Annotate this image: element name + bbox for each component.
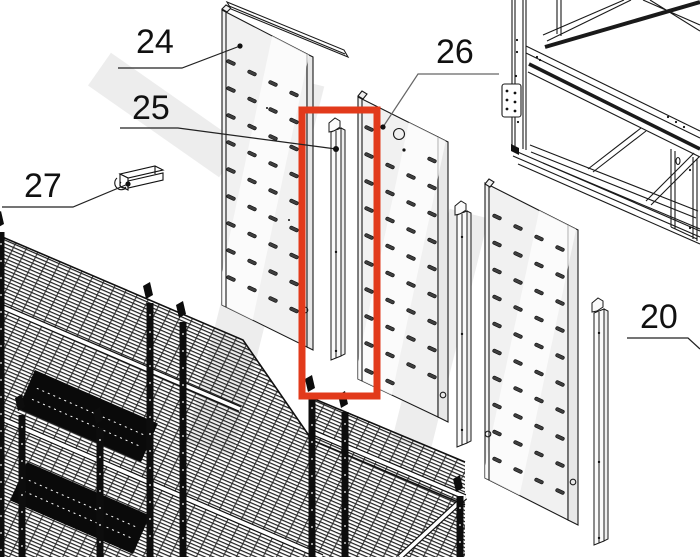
leader-27 xyxy=(2,184,128,207)
callout-27: 27 xyxy=(24,167,62,205)
leader-25-dot xyxy=(333,146,339,152)
post-hook-bracket xyxy=(0,211,4,228)
post-25 xyxy=(329,118,345,360)
callout-25: 25 xyxy=(132,89,170,127)
post-20-side xyxy=(604,309,608,541)
post-20 xyxy=(592,298,608,545)
panel-24-flange xyxy=(307,54,313,350)
rack-post xyxy=(0,211,5,557)
panel-26-flange xyxy=(438,137,448,422)
callout-20: 20 xyxy=(640,298,678,336)
cabinet-upper-rail-seal xyxy=(529,64,700,149)
leader-20 xyxy=(627,338,700,349)
leader-27-dot xyxy=(125,181,130,186)
callout-26: 26 xyxy=(436,33,474,71)
panel-rear xyxy=(465,131,596,557)
post-hook-bracket xyxy=(305,375,315,392)
leader-24-dot xyxy=(237,43,242,48)
cabinet-top-edges xyxy=(543,0,700,41)
cabinet-upper-rail xyxy=(526,46,700,157)
post-middle xyxy=(455,201,471,447)
post-25-side xyxy=(341,128,345,356)
callout-24: 24 xyxy=(136,23,174,61)
panel-rear-flange xyxy=(568,225,578,525)
post-hook-bracket xyxy=(143,282,153,299)
cabinet-hinge-plate xyxy=(502,84,521,117)
cabinet-rivet-dots xyxy=(515,39,691,229)
diagram-page: 24 25 26 27 20 xyxy=(0,0,700,557)
diagram-canvas: 24 25 26 27 20 xyxy=(0,0,700,557)
leader-26-dot xyxy=(380,124,385,129)
cabinet-side-slot-hole xyxy=(676,158,680,165)
